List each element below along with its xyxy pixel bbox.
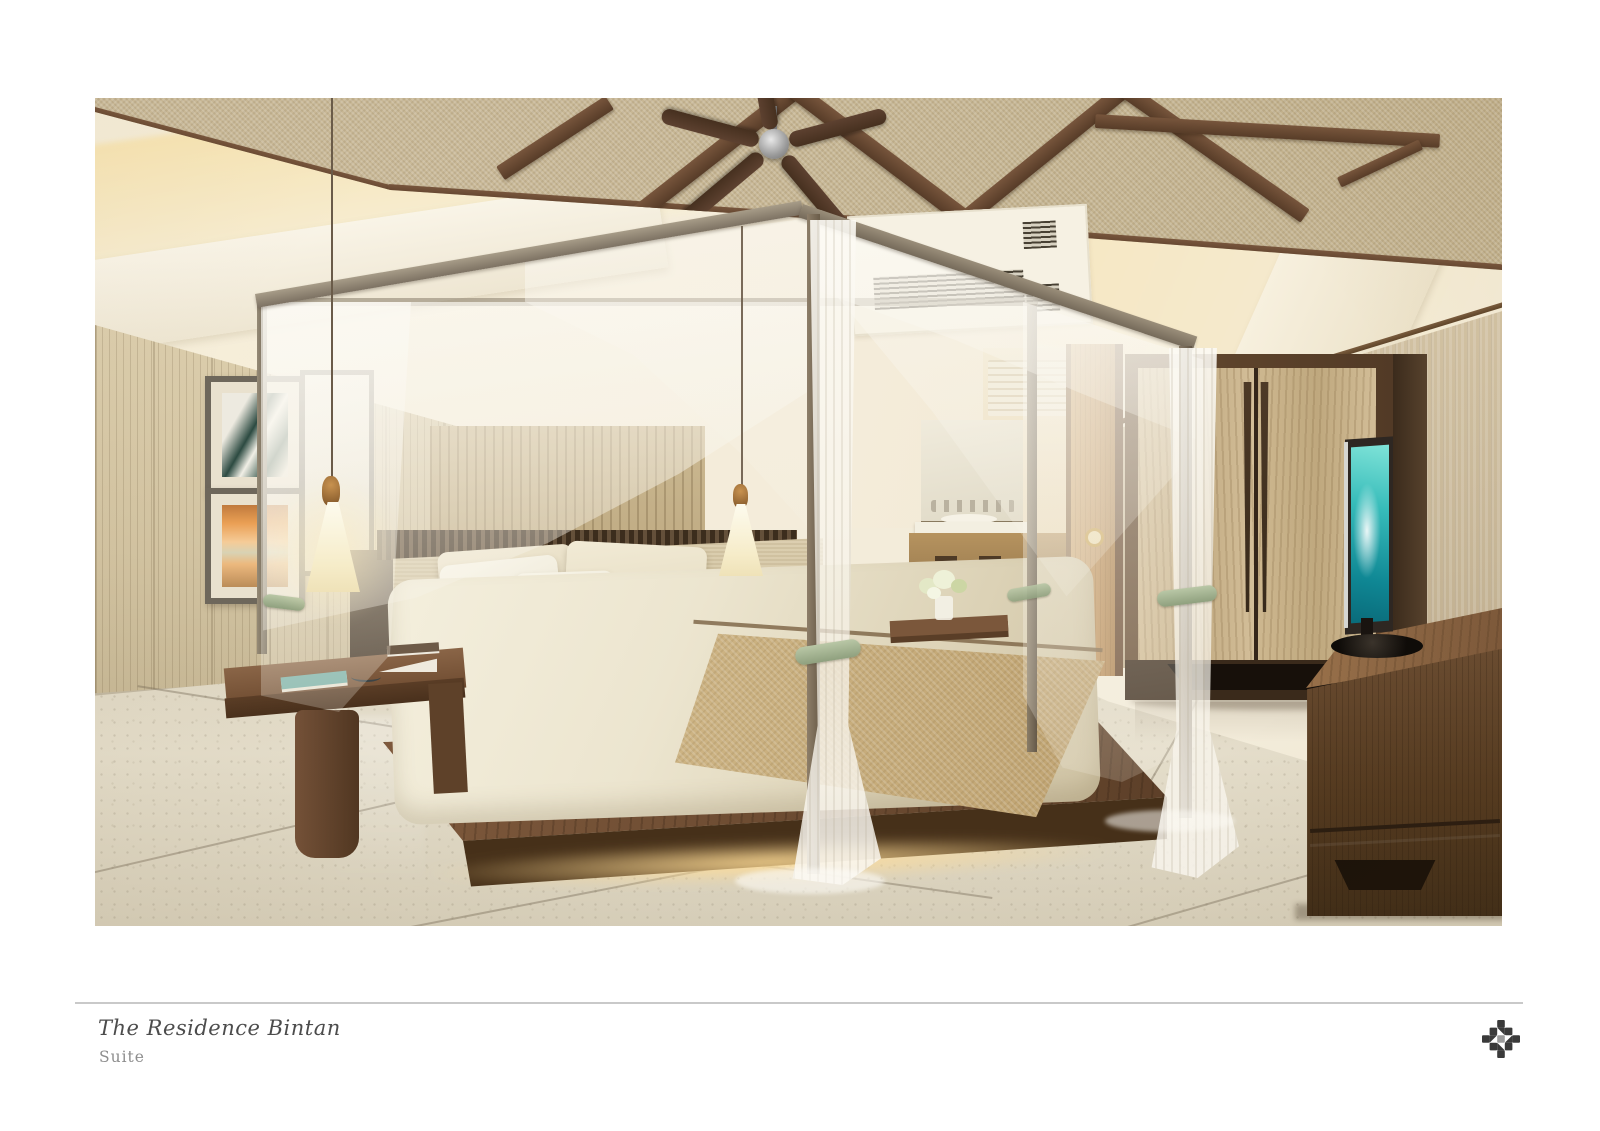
page-subtitle: Suite: [99, 1048, 145, 1066]
suite-rendering-image: [95, 98, 1502, 926]
presentation-page: The Residence Bintan Suite: [0, 0, 1600, 1131]
footer-divider: [75, 1002, 1523, 1004]
warm-vignette: [95, 98, 1502, 926]
page-title: The Residence Bintan: [98, 1016, 341, 1040]
brand-logo-icon: [1482, 1020, 1520, 1058]
